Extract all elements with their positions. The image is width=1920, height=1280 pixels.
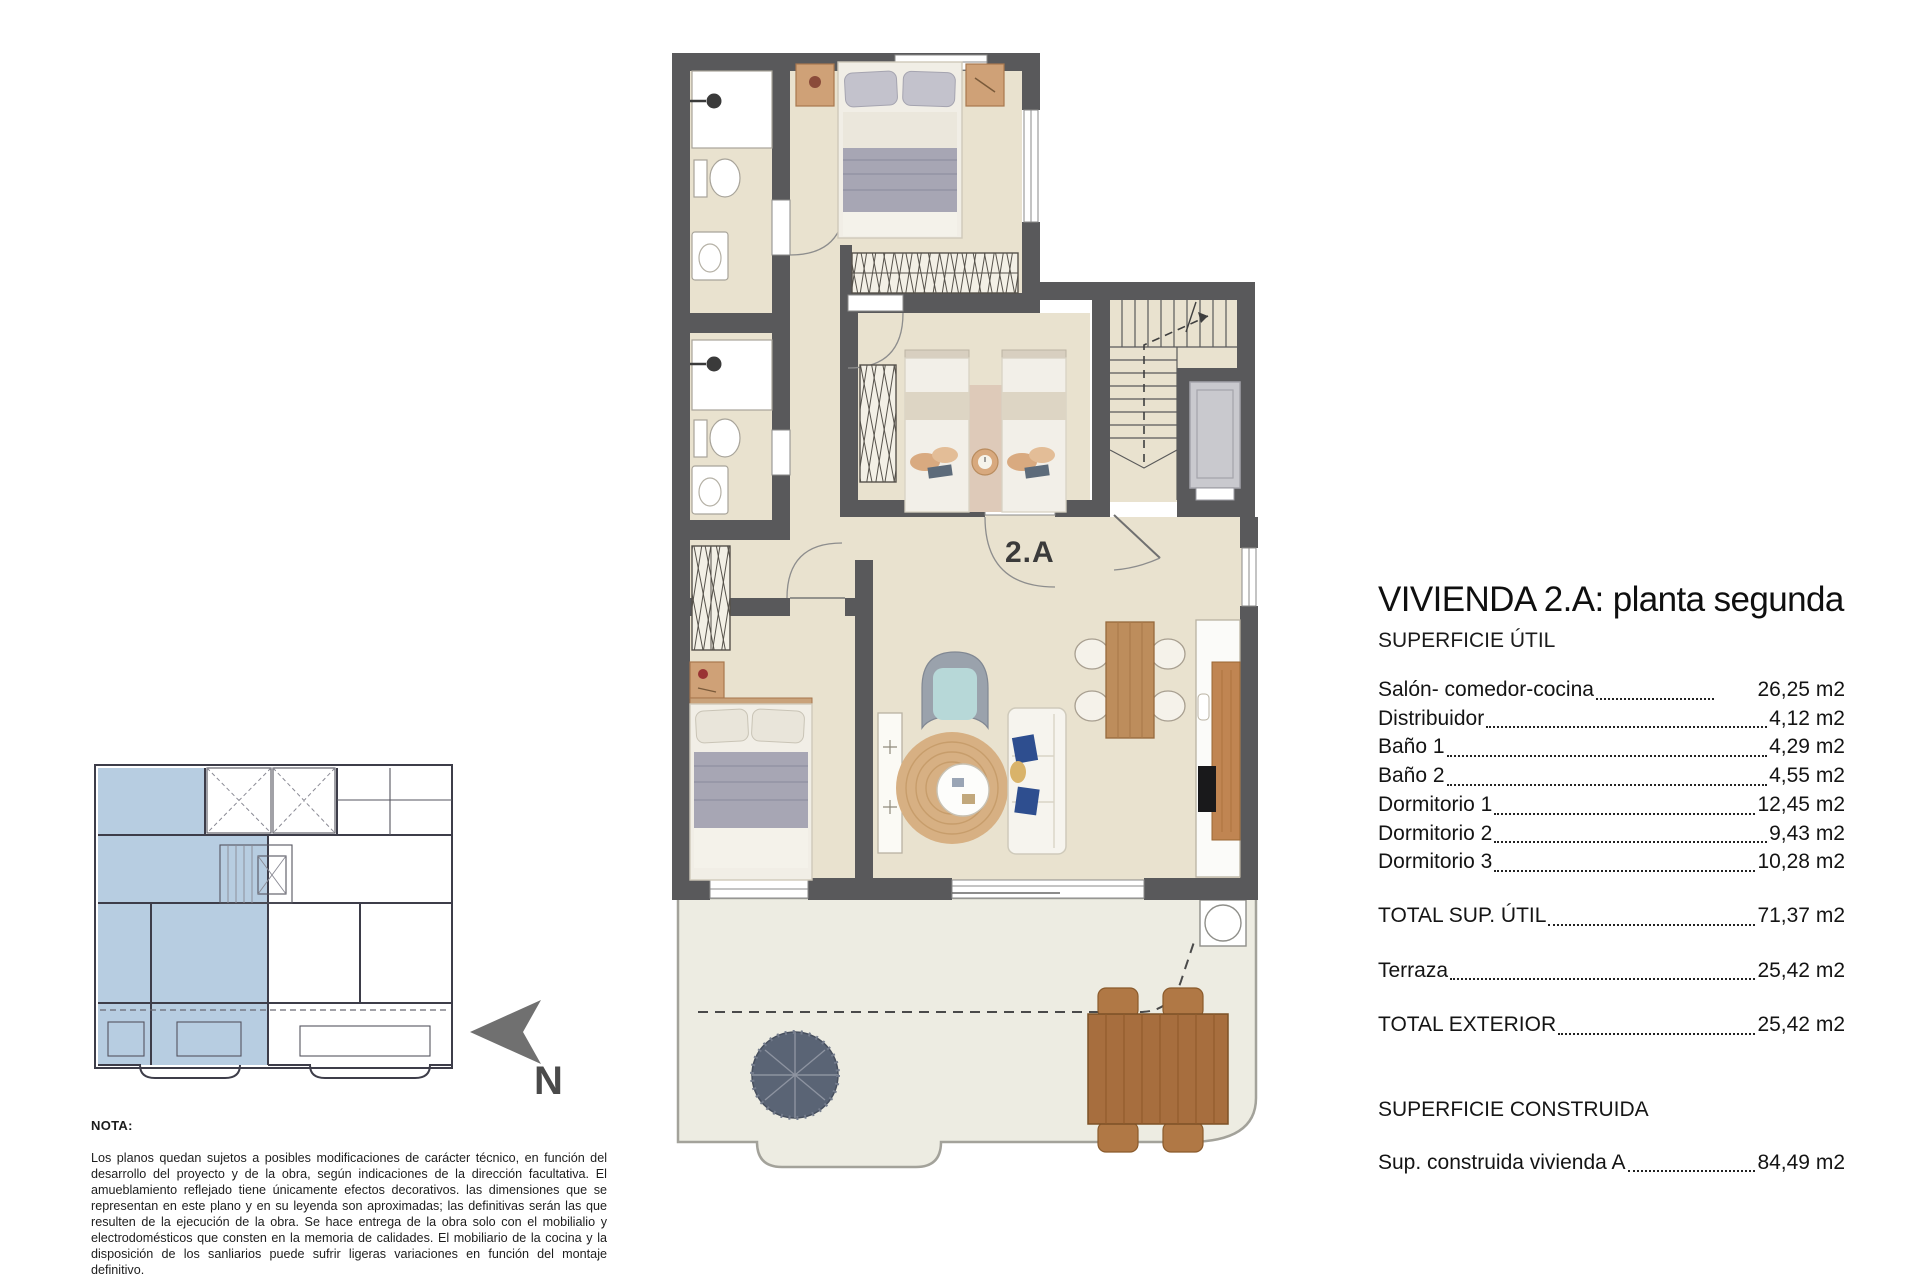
coffee-table xyxy=(937,764,989,816)
dot-leader xyxy=(1447,784,1768,786)
surface-row-value: 71,37 m2 xyxy=(1757,902,1845,931)
surface-row-value: 25,42 m2 xyxy=(1757,1011,1845,1040)
surface-row: Dormitorio 2 9,43 m2 xyxy=(1378,820,1845,849)
built-surface-list: Sup. construida vivienda A 84,49 m2 xyxy=(1378,1149,1845,1178)
surface-row: Dormitorio 1 12,45 m2 xyxy=(1378,791,1845,820)
toilet-icon xyxy=(694,159,740,197)
terrace-pouf xyxy=(752,1032,838,1118)
north-label: N xyxy=(534,1059,563,1103)
surface-row-label: Distribuidor xyxy=(1378,705,1484,734)
dot-leader xyxy=(1548,924,1755,926)
nota-heading: NOTA: xyxy=(91,1118,607,1133)
dot-leader xyxy=(1494,813,1755,815)
nota-body: Los planos quedan sujetos a posibles mod… xyxy=(91,1150,607,1278)
surface-row: Baño 1 4,29 m2 xyxy=(1378,733,1845,762)
surface-row: Baño 2 4,55 m2 xyxy=(1378,762,1845,791)
rooms-surface-list: Salón- comedor-cocina 26,25 m2 Distribui… xyxy=(1378,676,1845,877)
north-arrow: N xyxy=(470,1000,563,1103)
bedside-table xyxy=(972,449,998,475)
key-plan xyxy=(95,765,452,1078)
surface-row-label: Terraza xyxy=(1378,957,1448,986)
terrace xyxy=(678,898,1256,1167)
surface-row: Salón- comedor-cocina 26,25 m2 xyxy=(1378,676,1845,705)
nota-block: NOTA: Los planos quedan sujetos a posibl… xyxy=(91,1118,607,1278)
twin-bed xyxy=(1002,350,1066,512)
sink-icon xyxy=(692,466,728,514)
kitchen-counter xyxy=(1196,620,1240,877)
sofa xyxy=(1008,708,1066,854)
built-surface-heading: SUPERFICIE CONSTRUIDA xyxy=(1378,1098,1845,1122)
surface-row-value: 26,25 m2 xyxy=(1757,676,1845,705)
dot-leader xyxy=(1628,1170,1756,1172)
nightstand xyxy=(690,662,724,698)
sink-icon xyxy=(692,232,728,280)
north-arrow-icon xyxy=(470,1000,541,1064)
page-title: VIVIENDA 2.A: planta segunda xyxy=(1378,580,1845,620)
dot-leader xyxy=(1447,755,1768,757)
elevator xyxy=(1177,368,1252,502)
surface-row-value: 84,49 m2 xyxy=(1757,1149,1845,1178)
surface-row-label: Dormitorio 2 xyxy=(1378,820,1492,849)
twin-bed xyxy=(905,350,969,512)
surface-row-value: 4,29 m2 xyxy=(1769,733,1845,762)
surface-row-value: 4,55 m2 xyxy=(1769,762,1845,791)
cooktop xyxy=(1198,766,1216,812)
surface-row: Distribuidor 4,12 m2 xyxy=(1378,705,1845,734)
dot-leader xyxy=(1558,1033,1755,1035)
surface-row-value: 10,28 m2 xyxy=(1757,848,1845,877)
wardrobe xyxy=(860,365,896,482)
surface-row-label: Dormitorio 3 xyxy=(1378,848,1492,877)
armchair xyxy=(922,652,988,728)
shower-icon xyxy=(707,94,722,109)
surface-subtitle: SUPERFICIE ÚTIL xyxy=(1378,629,1845,653)
shower-icon xyxy=(707,357,722,372)
surface-row-label: Baño 1 xyxy=(1378,733,1445,762)
floorplan-page: 2.A N xyxy=(0,0,1920,1280)
surface-panel: VIVIENDA 2.A: planta segunda SUPERFICIE … xyxy=(1378,580,1845,1177)
surface-row-value: 12,45 m2 xyxy=(1757,791,1845,820)
surface-row: TOTAL SUP. ÚTIL 71,37 m2 xyxy=(1378,902,1845,931)
dot-leader xyxy=(1486,726,1767,728)
toilet-icon xyxy=(694,419,740,457)
surface-row-label: Sup. construida vivienda A xyxy=(1378,1149,1626,1178)
surface-row-label: Salón- comedor-cocina xyxy=(1378,676,1594,705)
surface-row: TOTAL EXTERIOR 25,42 m2 xyxy=(1378,1011,1845,1040)
surface-row-label: Baño 2 xyxy=(1378,762,1445,791)
dot-leader xyxy=(1494,841,1767,843)
surface-row-label: TOTAL EXTERIOR xyxy=(1378,1011,1556,1040)
totals-surface-list: TOTAL SUP. ÚTIL 71,37 m2 Terraza 25,42 m… xyxy=(1378,902,1845,1039)
bed xyxy=(690,698,812,880)
terrace-sink xyxy=(1200,900,1246,946)
dot-leader xyxy=(1596,698,1714,700)
unit-label: 2.A xyxy=(1005,536,1055,569)
wardrobe xyxy=(852,253,1018,293)
surface-row: Dormitorio 3 10,28 m2 xyxy=(1378,848,1845,877)
hall-closet xyxy=(692,546,730,650)
dot-leader xyxy=(1450,978,1755,980)
surface-row: Terraza 25,42 m2 xyxy=(1378,957,1845,986)
highlighted-unit xyxy=(98,768,268,1065)
surface-row: Sup. construida vivienda A 84,49 m2 xyxy=(1378,1149,1845,1178)
surface-row-label: Dormitorio 1 xyxy=(1378,791,1492,820)
surface-row-value: 4,12 m2 xyxy=(1769,705,1845,734)
surface-row-value: 9,43 m2 xyxy=(1769,820,1845,849)
surface-row-label: TOTAL SUP. ÚTIL xyxy=(1378,902,1546,931)
double-bed xyxy=(838,62,962,238)
surface-row-value: 25,42 m2 xyxy=(1757,957,1845,986)
dot-leader xyxy=(1494,870,1755,872)
